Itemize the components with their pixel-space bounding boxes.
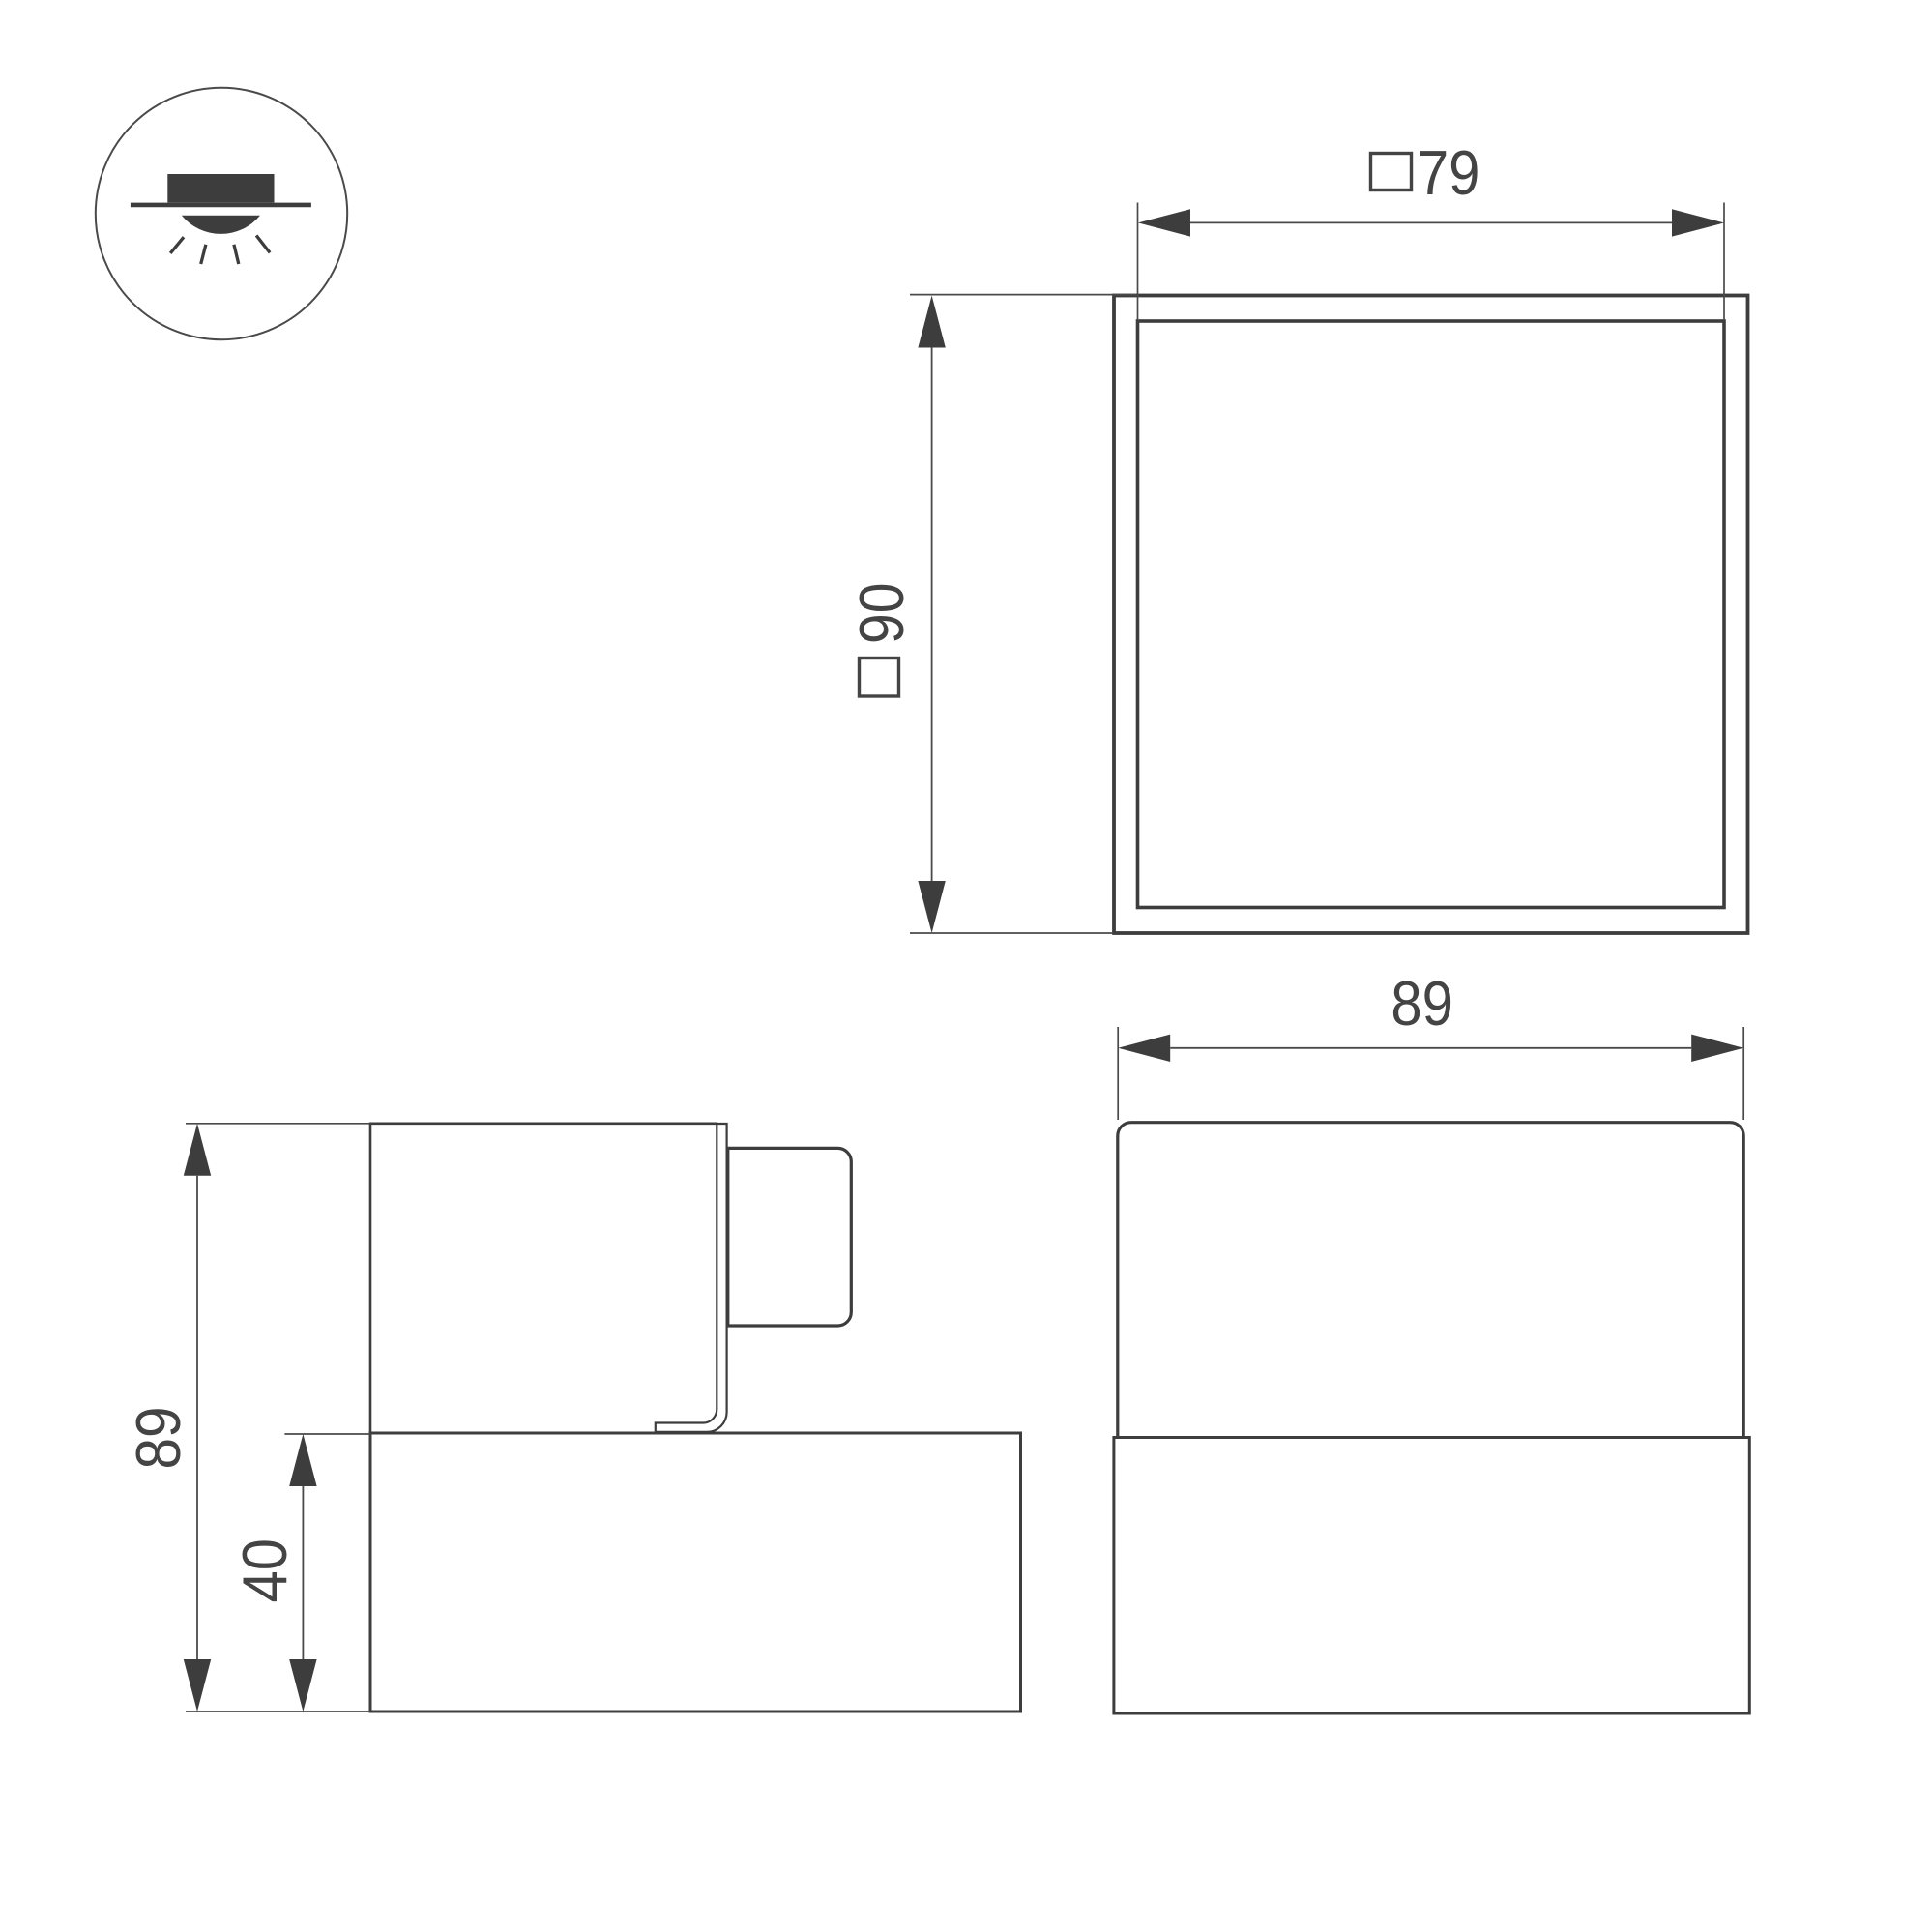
- svg-text:89: 89: [123, 1407, 193, 1470]
- svg-text:90: 90: [846, 583, 917, 645]
- svg-text:89: 89: [1390, 968, 1453, 1039]
- svg-text:79: 79: [1418, 137, 1480, 208]
- svg-text:40: 40: [229, 1538, 300, 1603]
